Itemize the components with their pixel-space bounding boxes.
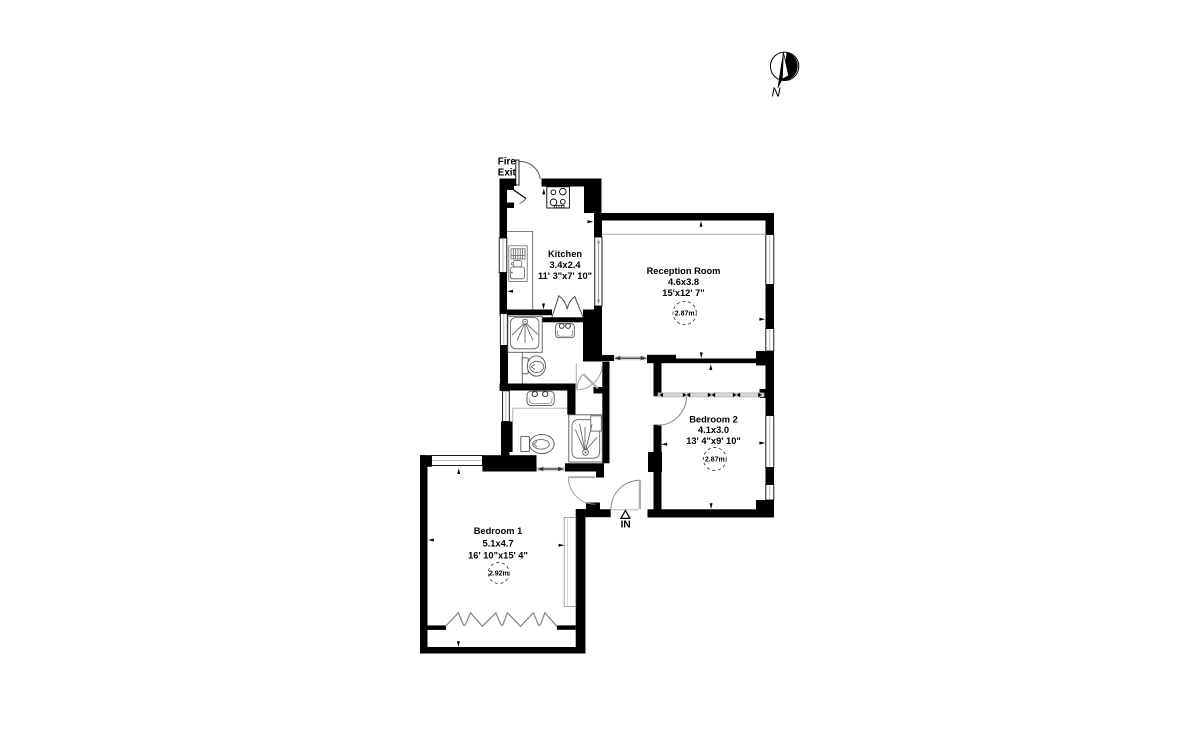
- svg-text:3.4x2.4: 3.4x2.4: [549, 260, 581, 270]
- svg-text:Kitchen: Kitchen: [548, 249, 582, 259]
- svg-text:2.87m: 2.87m: [705, 457, 725, 464]
- svg-text:13' 4"x9' 10": 13' 4"x9' 10": [686, 436, 741, 446]
- svg-text:Fire: Fire: [498, 157, 517, 168]
- svg-text:Bedroom 1: Bedroom 1: [474, 526, 523, 536]
- svg-text:IN: IN: [621, 520, 631, 531]
- svg-text:Bedroom 2: Bedroom 2: [689, 415, 738, 425]
- svg-text:Reception Room: Reception Room: [647, 266, 721, 276]
- svg-text:N: N: [771, 85, 781, 99]
- svg-text:Exit: Exit: [498, 167, 517, 178]
- svg-text:11' 3"x7' 10": 11' 3"x7' 10": [538, 271, 592, 281]
- svg-text:15'x12' 7": 15'x12' 7": [662, 288, 704, 298]
- svg-text:16' 10"x15' 4": 16' 10"x15' 4": [468, 551, 528, 561]
- svg-text:2.92m: 2.92m: [489, 571, 509, 578]
- svg-text:5.1x4.7: 5.1x4.7: [482, 539, 513, 549]
- svg-text:2.87m: 2.87m: [675, 311, 695, 318]
- svg-text:4.6x3.8: 4.6x3.8: [668, 277, 699, 287]
- svg-text:4.1x3.0: 4.1x3.0: [698, 425, 729, 435]
